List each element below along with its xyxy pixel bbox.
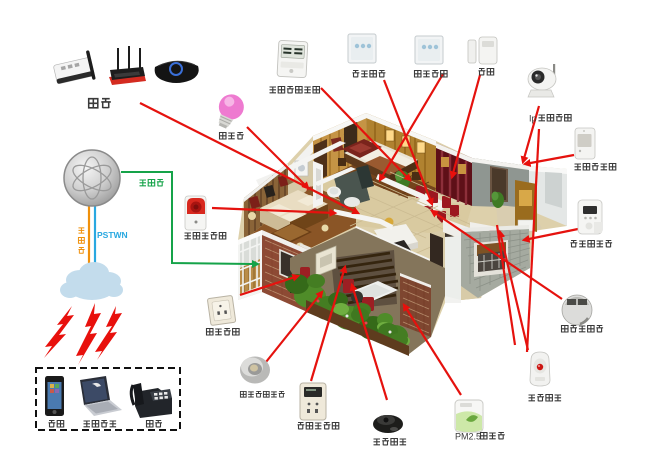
svg-text:PSTWN: PSTWN xyxy=(97,230,128,240)
svg-text:Ip: Ip xyxy=(529,114,537,124)
svg-text:PM2.5: PM2.5 xyxy=(455,432,481,442)
